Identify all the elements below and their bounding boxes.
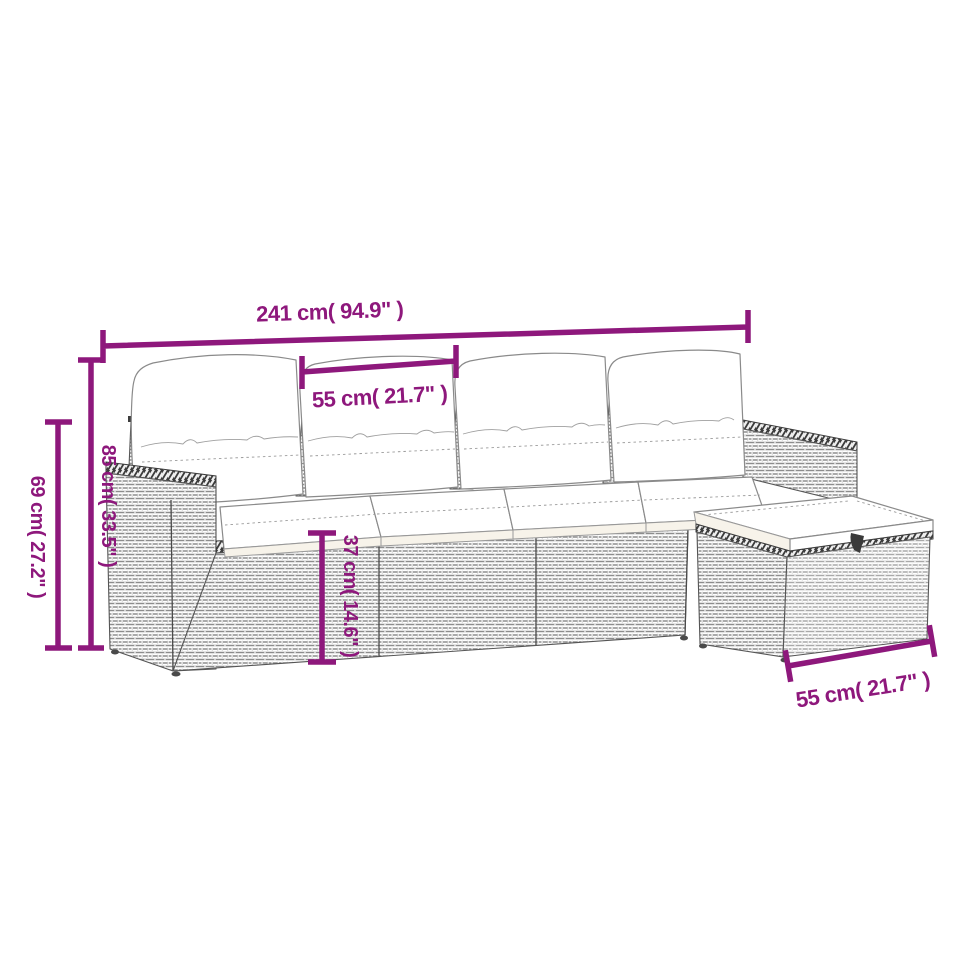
dimension-label-back-height: 85 cm( 33.5" ) xyxy=(97,445,119,568)
foot xyxy=(111,650,119,655)
right-armrest xyxy=(743,420,857,505)
diagram-canvas: 241 cm( 94.9" ) 55 cm( 21.7" ) 85 cm( 33… xyxy=(0,0,955,955)
back-cushion-4 xyxy=(608,350,745,482)
footstool xyxy=(694,496,933,657)
dimension-line xyxy=(45,422,72,648)
dimension-label-arm-height: 69 cm( 27.2" ) xyxy=(26,476,48,599)
dimension-label-seat-height: 37 cm( 14.6" ) xyxy=(339,535,361,658)
foot xyxy=(680,636,688,641)
sofa-line-art xyxy=(106,350,933,676)
seat-cushion-2 xyxy=(370,489,513,537)
back-cushion-2 xyxy=(300,356,458,497)
dimension-label-footstool-width: 55 cm( 21.7" ) xyxy=(794,667,932,713)
dimension-arm-height: 69 cm( 27.2" ) xyxy=(26,422,72,648)
foot xyxy=(172,672,181,677)
dimension-label-overall-width: 241 cm( 94.9" ) xyxy=(256,296,404,326)
back-cushion-3 xyxy=(455,353,611,489)
seat-cushion-3 xyxy=(504,482,646,530)
footstool-right-face xyxy=(783,537,930,657)
foot xyxy=(699,644,707,649)
product-dimension-diagram: 241 cm( 94.9" ) 55 cm( 21.7" ) 85 cm( 33… xyxy=(0,0,955,955)
